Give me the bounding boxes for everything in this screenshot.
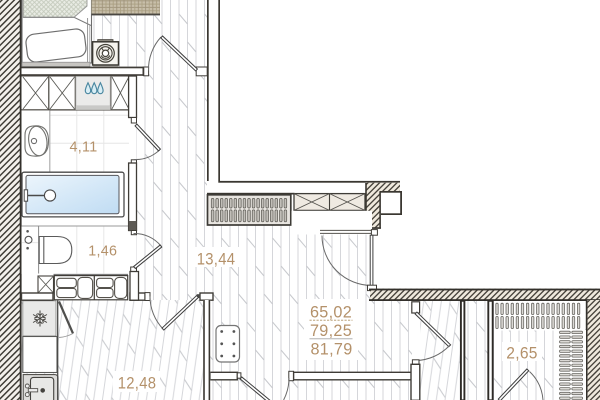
svg-text:81,79: 81,79 [311,340,353,359]
svg-text:12,48: 12,48 [118,375,157,393]
svg-text:65,02: 65,02 [310,303,352,322]
svg-text:13,44: 13,44 [197,251,236,269]
svg-text:1,46: 1,46 [88,242,117,259]
svg-text:2,65: 2,65 [506,345,538,363]
svg-text:4,11: 4,11 [70,138,98,155]
svg-text:79,25: 79,25 [310,321,352,340]
